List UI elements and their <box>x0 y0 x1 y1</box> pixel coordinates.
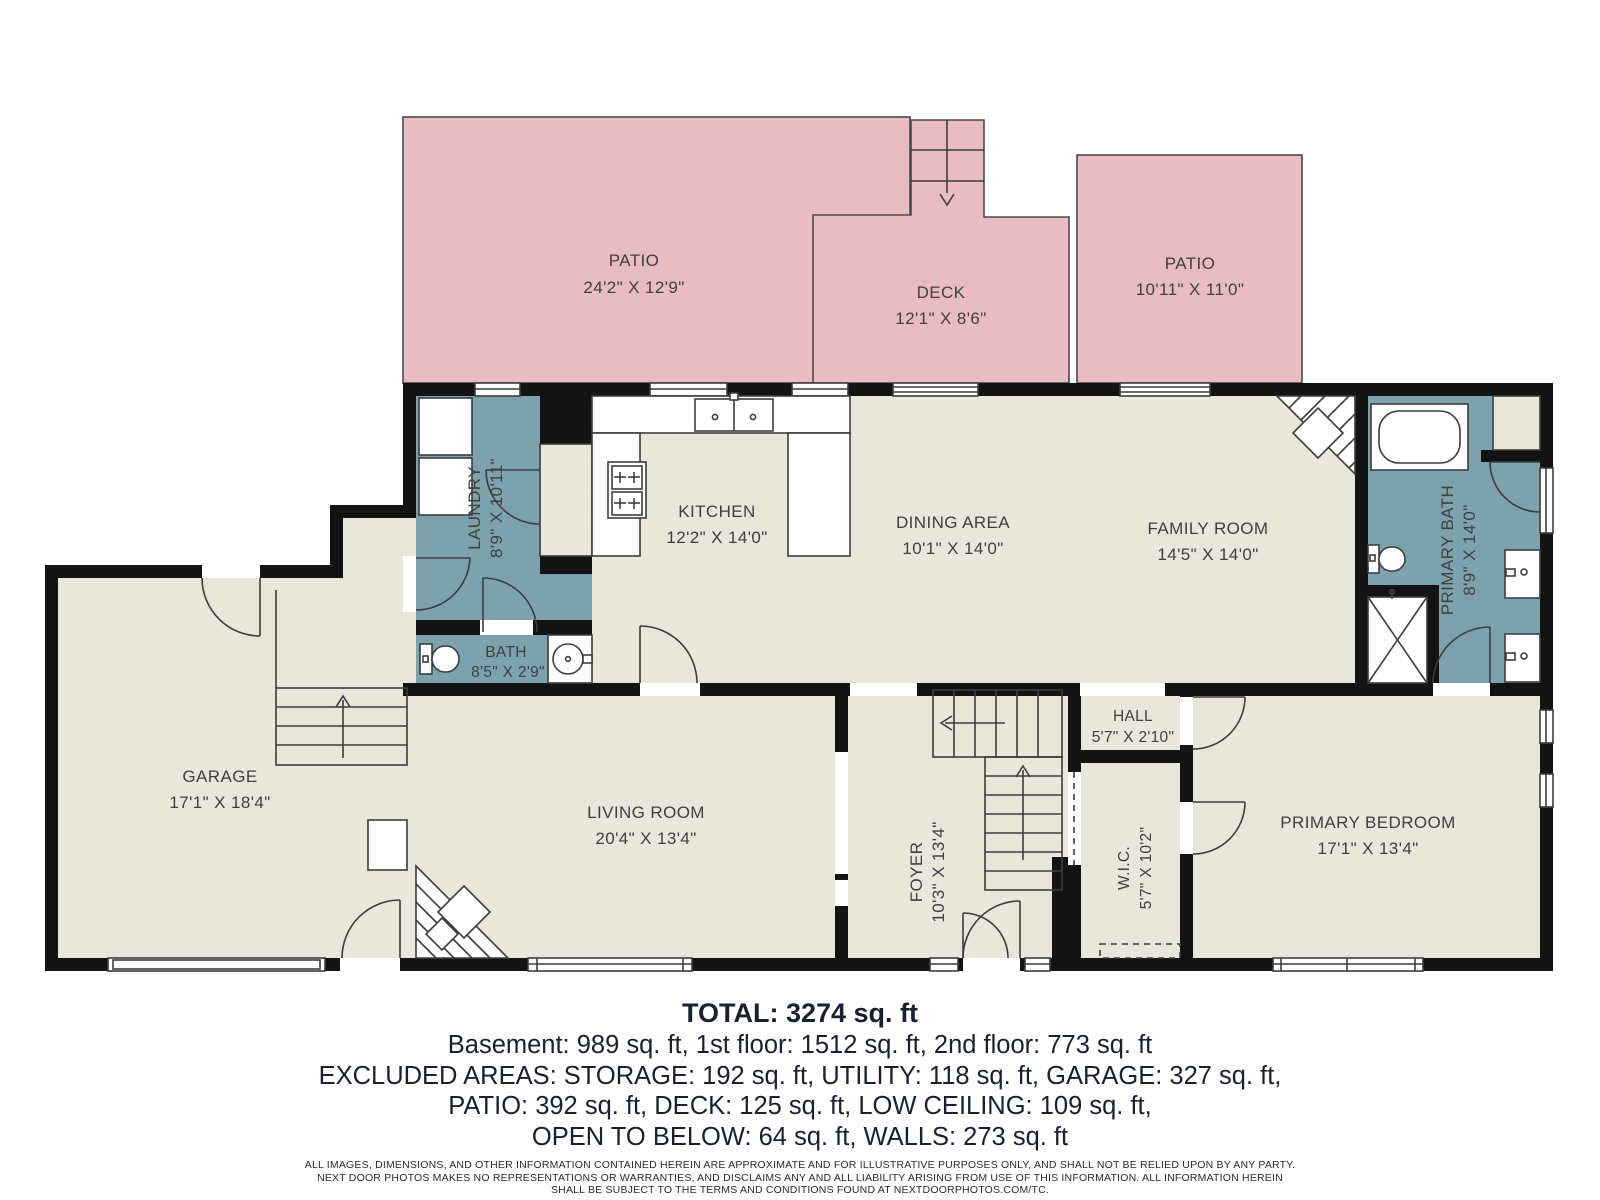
bath-toilet <box>420 644 459 674</box>
bath-dims: 8'5" X 2'9" <box>471 664 545 681</box>
living-room-window <box>528 958 692 971</box>
bath-label: BATH <box>485 644 526 661</box>
total-area: TOTAL: 3274 sq. ft <box>0 997 1600 1030</box>
kitchen-label: KITCHEN <box>678 502 755 521</box>
wic-label: W.I.C. <box>1116 846 1133 890</box>
patio-right-label: PATIO <box>1165 254 1216 273</box>
primary-bath-dims: 8'9" X 14'0" <box>1460 504 1479 595</box>
garage-label: GARAGE <box>182 767 257 786</box>
disclaimer: ALL IMAGES, DIMENSIONS, AND OTHER INFORM… <box>0 1159 1600 1197</box>
garage-service-door-opening <box>340 958 400 971</box>
stove <box>608 462 646 518</box>
excluded-areas-2: PATIO: 392 sq. ft, DECK: 125 sq. ft, LOW… <box>0 1091 1600 1122</box>
family-room-dims: 14'5" X 14'0" <box>1157 545 1258 564</box>
primary-bath-window <box>1540 468 1553 533</box>
floor-plan-page: PATIO 24'2" X 12'9" DECK 12'1" X 8'6" PA… <box>0 0 1600 1200</box>
hall-dims: 5'7" X 2'10" <box>1092 729 1175 746</box>
excluded-areas-3: OPEN TO BELOW: 64 sq. ft, WALLS: 273 sq.… <box>0 1122 1600 1153</box>
living-room-dims: 20'4" X 13'4" <box>595 829 696 848</box>
vanity-sink-1 <box>1505 550 1540 598</box>
primary-bath-toilet <box>1368 545 1405 573</box>
kitchen-sink <box>695 393 773 431</box>
laundry-window <box>475 383 520 396</box>
area-summary: TOTAL: 3274 sq. ft Basement: 989 sq. ft,… <box>0 997 1600 1197</box>
foyer-label: FOYER <box>907 842 926 903</box>
garage-side-door-opening <box>202 565 260 578</box>
primary-bath-closet <box>1493 396 1540 450</box>
bedroom-double-window <box>1273 958 1423 971</box>
laundry-dims: 8'9" X 10'11" <box>487 458 506 558</box>
laundry-label: LAUNDRY <box>465 466 484 550</box>
disclaimer-line-1: ALL IMAGES, DIMENSIONS, AND OTHER INFORM… <box>0 1159 1600 1172</box>
laundry-floor-ext <box>540 574 592 620</box>
laundry-garage-door-opening <box>403 556 416 612</box>
foyer-window-right <box>1025 958 1050 971</box>
living-room-label: LIVING ROOM <box>587 803 705 822</box>
foyer-dims: 10'3" X 13'4" <box>929 821 948 922</box>
washer <box>419 398 472 455</box>
hall-label: HALL <box>1113 708 1153 725</box>
wic-dims: 5'7" X 10'2" <box>1138 827 1155 910</box>
patio-left-dims: 24'2" X 12'9" <box>583 278 684 297</box>
garage-vehicle-door <box>108 958 325 971</box>
deck-sliding-door <box>893 383 978 396</box>
disclaimer-line-3: SHALL BE SUBJECT TO THE TERMS AND CONDIT… <box>0 1184 1600 1197</box>
kitchen-counter-right <box>788 433 850 556</box>
vanity-sink-2 <box>1505 634 1540 682</box>
patio-left-label: PATIO <box>609 251 660 270</box>
shower <box>1368 589 1427 683</box>
foyer-window-left <box>930 958 958 971</box>
pantry-closet <box>540 444 592 556</box>
dining-window <box>792 383 848 396</box>
kitchen-window <box>650 383 727 396</box>
primary-bedroom-dims: 17'1" X 13'4" <box>1317 839 1418 858</box>
bathtub <box>1371 404 1468 470</box>
bath-sink <box>548 635 592 683</box>
family-room-label: FAMILY ROOM <box>1148 519 1269 538</box>
garage-dims: 17'1" X 18'4" <box>169 793 270 812</box>
patio-right-dims: 10'11" X 11'0" <box>1136 280 1245 299</box>
primary-bath-label: PRIMARY BATH <box>1438 485 1457 615</box>
bedroom-window-right-2 <box>1540 774 1553 807</box>
deck-dims: 12'1" X 8'6" <box>895 309 986 328</box>
floor-areas: Basement: 989 sq. ft, 1st floor: 1512 sq… <box>0 1030 1600 1061</box>
bedroom-window-right-1 <box>1540 710 1553 743</box>
front-door-opening <box>963 958 1020 971</box>
primary-bedroom-label: PRIMARY BEDROOM <box>1280 813 1455 832</box>
floor-plan-drawing: PATIO 24'2" X 12'9" DECK 12'1" X 8'6" PA… <box>0 0 1600 1000</box>
garage-utility-box <box>368 820 407 870</box>
family-room-sliding-door <box>1120 383 1210 396</box>
excluded-areas-1: EXCLUDED AREAS: STORAGE: 192 sq. ft, UTI… <box>0 1061 1600 1092</box>
dining-label: DINING AREA <box>896 513 1010 532</box>
kitchen-dims: 12'2" X 14'0" <box>666 528 767 547</box>
outdoor-areas <box>403 117 1302 383</box>
disclaimer-line-2: NEXT DOOR PHOTOS MAKES NO REPRESENTATION… <box>0 1172 1600 1185</box>
deck-label: DECK <box>917 283 966 302</box>
dining-dims: 10'1" X 14'0" <box>902 539 1003 558</box>
